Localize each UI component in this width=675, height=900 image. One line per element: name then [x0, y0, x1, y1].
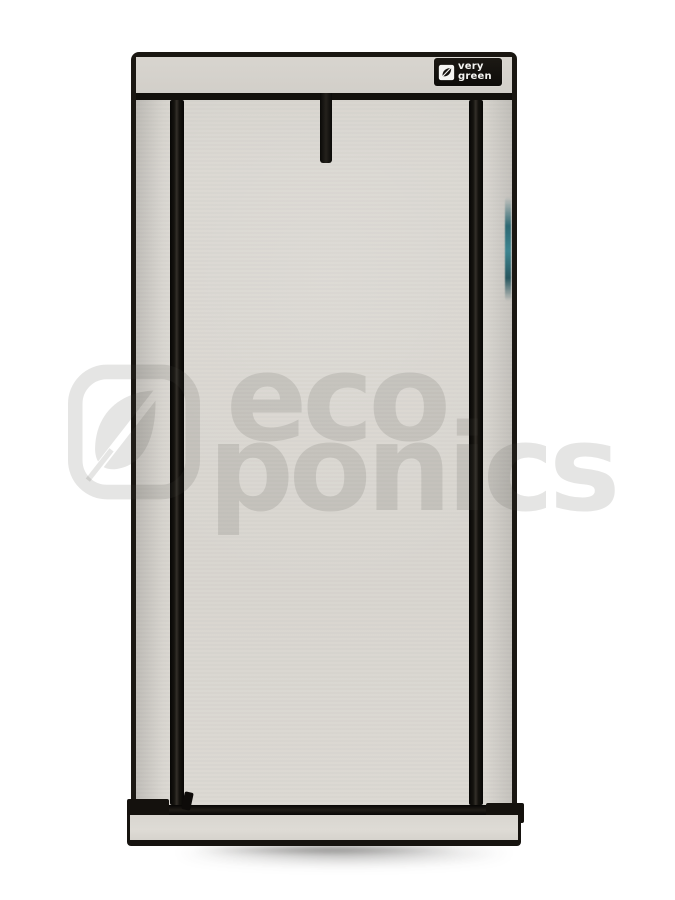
- grow-tent: very green: [131, 52, 517, 846]
- left-vertical-zipper: [170, 100, 184, 805]
- tent-front-panel: very green: [136, 57, 512, 846]
- bottom-skirt: [127, 815, 521, 846]
- teal-interior-sliver: [505, 197, 511, 301]
- center-zipper-strap: [320, 93, 332, 163]
- brand-patch-line2: green: [458, 72, 492, 82]
- right-vertical-zipper: [469, 100, 483, 805]
- leaf-checkbox-icon: [438, 64, 455, 81]
- brand-patch-text: very green: [458, 62, 492, 82]
- ground-shadow-hard: [134, 845, 520, 857]
- bottom-horizontal-zipper: [136, 805, 512, 815]
- brand-patch: very green: [434, 58, 502, 86]
- left-shading: [136, 93, 170, 805]
- product-photo: very green: [0, 0, 675, 900]
